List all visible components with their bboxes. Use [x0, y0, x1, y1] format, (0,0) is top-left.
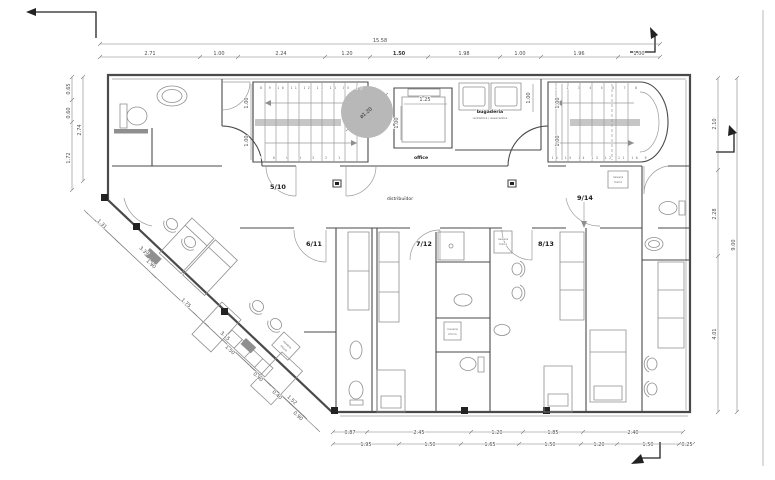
dim-top: 1.98 [458, 51, 469, 57]
dim-bottom-upper: 2.45 [413, 430, 424, 436]
curved-wall-left [222, 126, 262, 166]
fridge-micro-box: nevera micro [444, 322, 461, 340]
door-arc-bath-right [644, 166, 668, 194]
dim-shaft-width: 1.25 [419, 97, 430, 103]
dim-diag: 0.40 [271, 389, 283, 401]
dim-stair-run: 1.00 [244, 135, 250, 146]
door-arc-510 [266, 166, 296, 196]
dim-bottom-lower: 0.25 [681, 442, 692, 448]
dim-top: 2.71 [144, 51, 155, 57]
dim-bottom-lower: 1.50 [544, 442, 555, 448]
fridge-micro-box: nevera micro [608, 171, 628, 188]
corridor-symbols [333, 180, 516, 187]
dim-top-total: 15.58 [373, 38, 387, 44]
dim-bottom-upper: 1.85 [547, 430, 558, 436]
dim-bottom-lower: 1.95 [360, 442, 371, 448]
stair-numbers-right-bottom: 16 15 14 13 12 11 10 9 [552, 156, 647, 160]
laundry-machines [459, 83, 521, 110]
room-label-laundry-sub: rentadora / assecadora [473, 116, 508, 120]
room-label-914: 9/14 [577, 194, 593, 202]
floor-plan-drawing: nevera micro nevera micro nevera micro n… [0, 0, 775, 480]
dim-bottom-upper: 1.20 [491, 430, 502, 436]
room-label-laundry: bugaderia [477, 109, 503, 115]
dim-diag: 0.90 [292, 410, 304, 422]
dim-stair-run: 1.00 [526, 92, 532, 103]
dim-diag: 1.31 [96, 218, 108, 230]
dim-bottom-upper: 0.87 [344, 430, 355, 436]
dim-right: 2.10 [712, 118, 718, 129]
dim-bottom-lower: 1.20 [593, 442, 604, 448]
dim-top: 1.00 [633, 51, 644, 57]
furniture: nevera micro nevera micro nevera micro n… [144, 171, 685, 412]
room-labels: 5/10 6/11 7/12 8/13 9/14 office distribu… [260, 86, 647, 248]
stair-numbers-right-top: 1 2 3 4 5 6 7 8 [555, 86, 637, 90]
dim-stair-run: 1.00 [555, 97, 561, 108]
section-marker-right [716, 132, 734, 152]
dim-right: 2.28 [712, 208, 718, 219]
room-label-510: 5/10 [270, 183, 286, 191]
dim-diag: 1.75 [180, 297, 192, 309]
dim-right: 4.01 [712, 328, 718, 339]
dim-top: 1.00 [514, 51, 525, 57]
staircase-right [548, 82, 668, 162]
dim-bottom-upper: 2.40 [627, 430, 638, 436]
door-arc-corridor [346, 166, 376, 196]
dim-top: 1.96 [573, 51, 584, 57]
dim-top: 1.50 [393, 51, 406, 57]
dim-top: 1.00 [213, 51, 224, 57]
dim-left-lower: 1.72 [66, 152, 72, 163]
floor-plan-sheet: nevera micro nevera micro nevera micro n… [0, 0, 775, 480]
dim-top: 2.24 [275, 51, 286, 57]
room-label-office: office [414, 155, 428, 161]
lower-partitions [304, 166, 690, 412]
bathroom-top-left [114, 86, 187, 134]
dim-bottom-lower: 1.50 [424, 442, 435, 448]
dim-top: 1.20 [341, 51, 352, 57]
fridge-label: micro [614, 180, 623, 184]
fridge-label: micro [499, 242, 508, 246]
dim-diag: 1.50 [224, 344, 236, 356]
dim-left-total: 2.74 [77, 124, 83, 135]
section-markers [26, 8, 763, 466]
room-label-611: 6/11 [306, 240, 322, 248]
room-label-corridor: distribuïdor [387, 196, 413, 202]
dim-bottom-lower: 1.50 [642, 442, 653, 448]
fridge-label: micro [448, 332, 457, 336]
room-label-813: 8/13 [538, 240, 554, 248]
dim-left: 0.65 [66, 83, 72, 94]
fridge-label: nevera [613, 175, 624, 179]
stair-numbers-left-bottom: 7 6 5 4 3 2 1 [260, 156, 340, 160]
dim-bottom-lower: 1.65 [484, 442, 495, 448]
dim-stair-run: 1.00 [244, 97, 250, 108]
dim-stair-run: 1.00 [394, 117, 400, 128]
room-label-712: 7/12 [416, 240, 432, 248]
entry-door-arc [124, 198, 152, 226]
section-marker-top-left [34, 12, 96, 38]
curved-wall-right [508, 126, 548, 166]
dimension-labels: 15.58 2.71 1.00 2.24 1.20 1.50 1.98 1.00… [66, 38, 737, 448]
fridge-label: nevera [498, 237, 509, 241]
dim-right-total: 9.00 [731, 239, 737, 250]
dim-left: 0.60 [66, 107, 72, 118]
fridge-label: nevera [447, 327, 458, 331]
dim-stair-run: 1.00 [555, 135, 561, 146]
